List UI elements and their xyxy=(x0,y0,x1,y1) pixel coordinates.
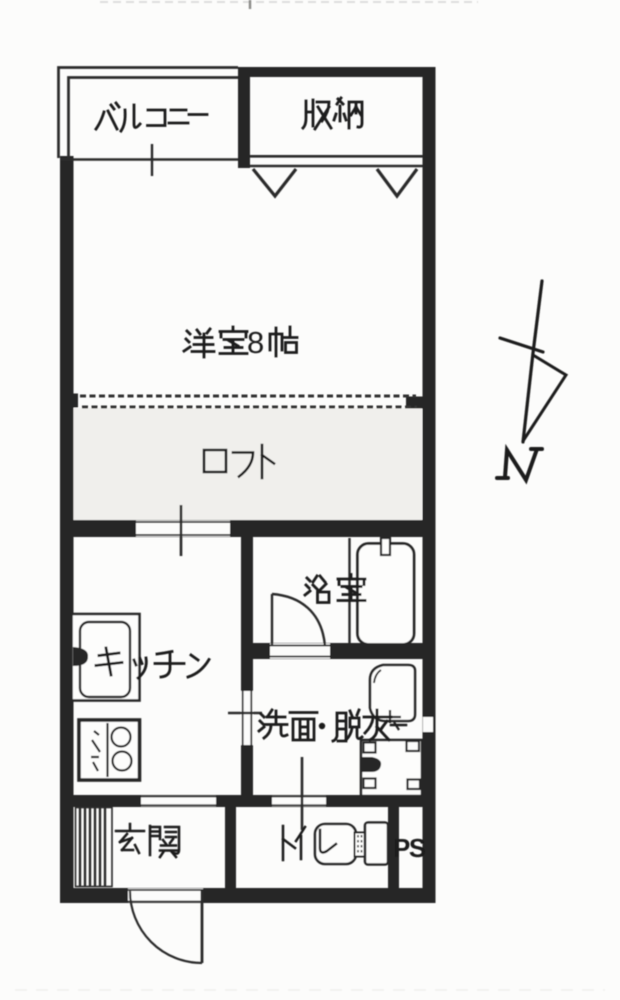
svg-text:PS: PS xyxy=(393,833,426,863)
svg-text:8: 8 xyxy=(247,325,264,360)
